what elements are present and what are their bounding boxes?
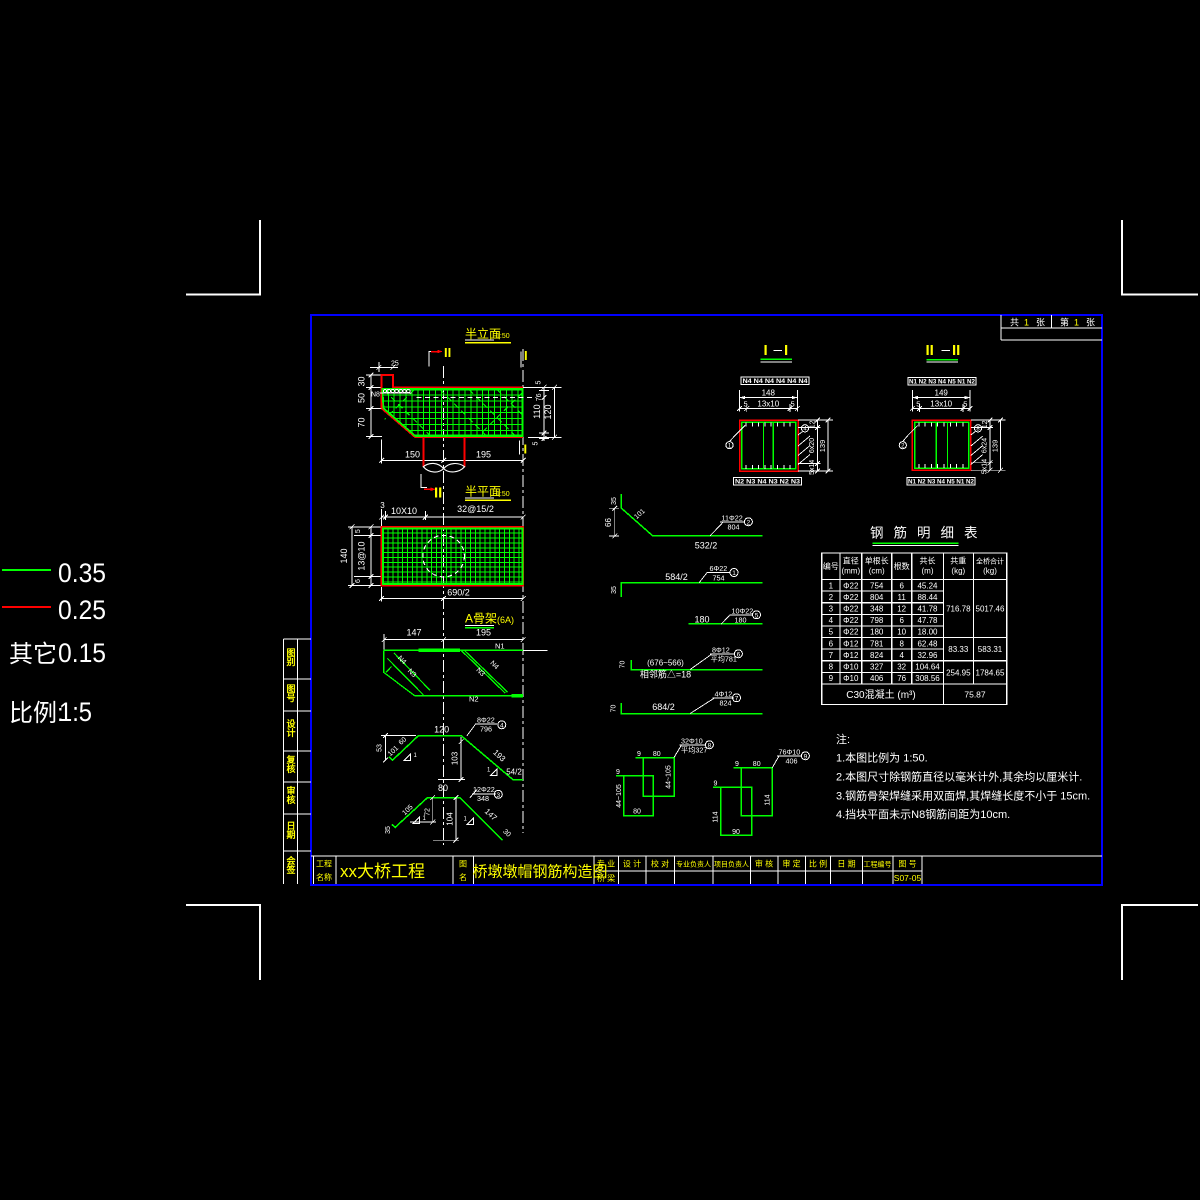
svg-text:25: 25 [391, 361, 399, 368]
svg-text:83.33: 83.33 [948, 645, 969, 654]
svg-text:32.96: 32.96 [917, 651, 938, 660]
svg-text:钢筋明细表: 钢筋明细表 [870, 525, 988, 541]
svg-text:Φ22: Φ22 [843, 581, 859, 590]
svg-text:计: 计 [287, 727, 296, 738]
svg-text:66: 66 [604, 518, 613, 527]
svg-text:(6A): (6A) [497, 615, 514, 625]
svg-text:别: 别 [286, 656, 296, 667]
svg-text:4Φ12: 4Φ12 [715, 689, 733, 698]
svg-text:2: 2 [829, 593, 834, 602]
svg-text:70: 70 [611, 705, 618, 713]
svg-text:44~105: 44~105 [665, 765, 672, 789]
svg-text:5: 5 [755, 612, 759, 619]
svg-text:全桥合计: 全桥合计 [976, 557, 1004, 566]
svg-text:30: 30 [357, 376, 367, 386]
svg-text:1: 1 [1074, 318, 1079, 328]
svg-text:3.钢筋骨架焊缝采用双面焊,其焊缝长度不小于 15cm.: 3.钢筋骨架焊缝采用双面焊,其焊缝长度不小于 15cm. [836, 789, 1090, 803]
svg-text:9: 9 [714, 781, 718, 788]
svg-text:148: 148 [762, 388, 776, 397]
svg-text:6x24: 6x24 [982, 438, 989, 453]
svg-text:72: 72 [424, 808, 431, 816]
svg-text:根数: 根数 [894, 561, 910, 571]
svg-text:12: 12 [897, 605, 906, 614]
svg-text:I: I [784, 342, 788, 359]
svg-text:张: 张 [1036, 318, 1045, 328]
svg-text:5: 5 [533, 441, 540, 445]
svg-text:18.00: 18.00 [917, 628, 938, 637]
svg-text:12: 12 [982, 420, 989, 428]
svg-text:45.24: 45.24 [917, 581, 938, 590]
svg-text:比 例: 比 例 [809, 859, 827, 869]
svg-text:1:5: 1:5 [59, 697, 92, 727]
svg-text:44~105: 44~105 [616, 784, 623, 808]
svg-text:6: 6 [355, 579, 362, 583]
svg-text:其它: 其它 [9, 641, 57, 668]
svg-text:70: 70 [620, 661, 627, 669]
svg-text:5: 5 [791, 400, 795, 409]
svg-text:I: I [764, 342, 768, 359]
svg-text:3: 3 [829, 605, 834, 614]
svg-text:N2: N2 [469, 695, 479, 704]
svg-text:7: 7 [735, 695, 739, 702]
svg-text:签: 签 [286, 864, 297, 875]
svg-text:(676~566): (676~566) [647, 658, 684, 667]
svg-text:I: I [524, 348, 528, 363]
svg-text:0.35: 0.35 [58, 558, 106, 588]
svg-text:0.25: 0.25 [58, 595, 106, 625]
svg-text:327: 327 [870, 663, 884, 672]
svg-text:专 业: 专 业 [597, 859, 615, 869]
svg-text:13x10: 13x10 [930, 400, 952, 409]
svg-text:150: 150 [405, 450, 420, 460]
svg-text:Φ22: Φ22 [843, 593, 859, 602]
svg-text:6: 6 [829, 639, 834, 648]
svg-text:审 核: 审 核 [755, 859, 773, 869]
svg-text:共长: 共长 [920, 556, 936, 566]
svg-text:62.48: 62.48 [917, 639, 938, 648]
svg-text:6: 6 [899, 581, 904, 590]
svg-text:9: 9 [829, 674, 834, 683]
svg-text:N1 N2 N3 N4 N5 N1 N2: N1 N2 N3 N4 N5 N1 N2 [908, 479, 974, 486]
svg-text:104: 104 [446, 812, 455, 826]
svg-text:3: 3 [380, 501, 385, 510]
svg-text:114: 114 [713, 811, 720, 822]
svg-text:单根长: 单根长 [865, 556, 889, 566]
svg-text:平均327: 平均327 [681, 745, 707, 754]
svg-text:76Φ10: 76Φ10 [779, 747, 801, 756]
svg-text:6: 6 [737, 651, 741, 658]
svg-text:工程编号: 工程编号 [864, 860, 892, 869]
svg-text:50: 50 [357, 393, 367, 403]
svg-text:(cm): (cm) [869, 567, 885, 576]
svg-text:180: 180 [870, 628, 884, 637]
svg-text:1:50: 1:50 [496, 491, 510, 498]
svg-text:1.本图比例为 1:50.: 1.本图比例为 1:50. [836, 751, 928, 765]
svg-text:824: 824 [870, 651, 884, 660]
svg-text:II: II [434, 485, 442, 502]
svg-text:5: 5 [916, 400, 920, 409]
svg-text:584/2: 584/2 [665, 572, 688, 582]
svg-text:图: 图 [459, 860, 467, 869]
svg-text:II: II [444, 345, 451, 360]
svg-text:9: 9 [735, 761, 739, 768]
svg-text:80: 80 [438, 783, 448, 793]
svg-text:8Φ22: 8Φ22 [477, 716, 495, 725]
svg-text:7: 7 [829, 651, 834, 660]
svg-text:308.56: 308.56 [915, 674, 940, 683]
svg-text:195: 195 [476, 450, 491, 460]
svg-text:804: 804 [870, 593, 884, 602]
svg-text:47.78: 47.78 [917, 616, 938, 625]
svg-text:Φ12: Φ12 [843, 639, 859, 648]
svg-text:120: 120 [434, 725, 449, 735]
svg-text:11: 11 [898, 593, 907, 602]
svg-text:工程: 工程 [316, 860, 332, 869]
svg-text:(m): (m) [922, 567, 934, 576]
svg-text:254.95: 254.95 [946, 669, 971, 678]
svg-text:(kg): (kg) [951, 567, 965, 576]
svg-text:平均781: 平均781 [711, 654, 737, 663]
svg-text:8: 8 [899, 639, 904, 648]
svg-text:6Φ22: 6Φ22 [710, 564, 728, 573]
svg-text:(mm): (mm) [841, 567, 860, 576]
svg-text:Φ22: Φ22 [843, 605, 859, 614]
svg-text:名: 名 [459, 872, 467, 882]
svg-text:校 对: 校 对 [651, 859, 669, 869]
svg-text:1784.65: 1784.65 [976, 669, 1005, 678]
svg-text:N4 N4 N4 N4 N4 N4: N4 N4 N4 N4 N4 N4 [743, 378, 809, 385]
svg-text:88.44: 88.44 [917, 593, 938, 602]
svg-text:716.78: 716.78 [946, 605, 971, 614]
svg-text:项目负责人: 项目负责人 [714, 860, 749, 869]
svg-text:4: 4 [899, 651, 904, 660]
svg-text:9: 9 [637, 751, 641, 758]
svg-text:5017.46: 5017.46 [976, 605, 1005, 614]
svg-text:张: 张 [1086, 318, 1095, 328]
svg-text:32Φ10: 32Φ10 [681, 736, 703, 745]
svg-text:4: 4 [500, 722, 504, 729]
svg-text:1: 1 [732, 570, 736, 577]
svg-text:12Φ22: 12Φ22 [473, 785, 495, 794]
svg-text:754: 754 [713, 574, 725, 583]
svg-text:180: 180 [694, 615, 709, 625]
svg-text:1:50: 1:50 [496, 333, 510, 340]
svg-text:4.挡块平面未示N8钢筋间距为10cm.: 4.挡块平面未示N8钢筋间距为10cm. [836, 807, 1010, 821]
svg-text:核: 核 [287, 794, 296, 805]
svg-text:54/2: 54/2 [506, 768, 522, 777]
svg-text:I: I [524, 442, 528, 457]
svg-text:2: 2 [747, 519, 751, 526]
svg-text:104.64: 104.64 [915, 663, 940, 672]
svg-text:专业负责人: 专业负责人 [676, 860, 711, 869]
svg-text:Φ22: Φ22 [843, 616, 859, 625]
svg-text:Φ12: Φ12 [843, 651, 859, 660]
svg-text:8: 8 [829, 663, 834, 672]
svg-text:N1: N1 [495, 642, 505, 651]
svg-text:图 号: 图 号 [898, 860, 916, 869]
svg-text:Φ22: Φ22 [843, 628, 859, 637]
svg-text:53: 53 [377, 744, 384, 752]
svg-text:103: 103 [451, 751, 460, 765]
svg-text:N2 N3 N4 N3 N2 N3: N2 N3 N4 N3 N2 N3 [735, 479, 801, 486]
svg-text:35: 35 [385, 826, 392, 834]
svg-text:76: 76 [536, 393, 543, 401]
svg-text:76: 76 [897, 674, 906, 683]
svg-text:比例:: 比例: [9, 700, 64, 727]
svg-text:10X10: 10X10 [391, 506, 417, 516]
svg-text:II: II [926, 342, 934, 359]
svg-text:9: 9 [616, 769, 620, 776]
svg-text:147: 147 [406, 628, 421, 638]
svg-text:114: 114 [765, 794, 772, 805]
svg-text:Φ10: Φ10 [843, 674, 859, 683]
svg-text:期: 期 [287, 829, 296, 840]
svg-text:II: II [952, 342, 960, 359]
svg-text:149: 149 [935, 388, 949, 397]
svg-text:桥 梁: 桥 梁 [597, 873, 615, 883]
svg-text:核: 核 [287, 763, 296, 774]
svg-text:13x10: 13x10 [757, 400, 779, 409]
svg-text:5: 5 [744, 400, 748, 409]
svg-text:N1 N2 N3 N4 N5 N1 N2: N1 N2 N3 N4 N5 N1 N2 [909, 379, 975, 386]
svg-text:审 定: 审 定 [782, 859, 800, 869]
svg-text:5x14: 5x14 [809, 460, 816, 475]
svg-text:11Φ22: 11Φ22 [722, 513, 743, 522]
svg-text:xx大桥工程: xx大桥工程 [340, 862, 425, 881]
svg-text:348: 348 [477, 794, 489, 803]
svg-text:3: 3 [496, 792, 500, 799]
svg-text:348: 348 [870, 605, 884, 614]
svg-text:41.78: 41.78 [917, 605, 938, 614]
svg-text:直径: 直径 [843, 556, 859, 566]
svg-text:相邻筋△=18: 相邻筋△=18 [640, 668, 691, 679]
svg-text:8Φ12: 8Φ12 [712, 645, 730, 654]
svg-text:1: 1 [1024, 318, 1029, 328]
svg-text:5x14: 5x14 [982, 459, 989, 474]
svg-text:796: 796 [480, 725, 492, 734]
svg-text:编号: 编号 [823, 561, 839, 571]
svg-text:13@10: 13@10 [357, 541, 367, 570]
svg-text:35: 35 [611, 586, 618, 594]
svg-text:406: 406 [870, 674, 884, 683]
svg-text:583.31: 583.31 [978, 645, 1003, 654]
svg-text:9: 9 [804, 753, 808, 760]
svg-text:798: 798 [870, 616, 884, 625]
svg-text:5: 5 [355, 529, 362, 533]
svg-text:0.15: 0.15 [58, 638, 106, 668]
svg-text:S07-05: S07-05 [894, 873, 922, 883]
svg-text:4: 4 [829, 616, 834, 625]
svg-text:139: 139 [990, 440, 999, 453]
svg-text:110: 110 [532, 404, 542, 418]
svg-text:32: 32 [897, 663, 906, 672]
svg-text:12: 12 [809, 420, 816, 428]
svg-text:名称: 名称 [316, 872, 332, 882]
svg-text:75.87: 75.87 [964, 690, 986, 700]
svg-text:804: 804 [728, 522, 740, 531]
svg-text:设 计: 设 计 [623, 859, 641, 869]
svg-text:532/2: 532/2 [695, 541, 718, 551]
svg-text:690/2: 690/2 [447, 588, 470, 598]
svg-text:5: 5 [536, 380, 543, 384]
svg-text:10: 10 [897, 628, 906, 637]
svg-text:195: 195 [476, 628, 491, 638]
svg-text:754: 754 [870, 581, 884, 590]
svg-text:80: 80 [633, 809, 641, 816]
svg-text:N8: N8 [371, 392, 380, 399]
svg-text:32@15/2: 32@15/2 [457, 504, 494, 514]
svg-text:5: 5 [963, 400, 967, 409]
svg-text:406: 406 [786, 756, 798, 765]
svg-text:139: 139 [818, 440, 827, 453]
svg-text:5: 5 [829, 628, 834, 637]
svg-text:2.本图尺寸除钢筋直径以毫米计外,其余均以厘米计.: 2.本图尺寸除钢筋直径以毫米计外,其余均以厘米计. [836, 770, 1082, 784]
svg-text:10Φ22: 10Φ22 [732, 606, 754, 615]
svg-text:Φ10: Φ10 [843, 663, 859, 672]
svg-text:824: 824 [720, 698, 732, 707]
svg-text:6: 6 [899, 616, 904, 625]
svg-text:140: 140 [339, 548, 349, 563]
svg-text:80: 80 [753, 761, 761, 768]
svg-text:120: 120 [543, 404, 553, 419]
svg-text:1: 1 [829, 581, 834, 590]
svg-text:781: 781 [870, 639, 884, 648]
svg-text:共: 共 [1010, 318, 1019, 328]
svg-text:35: 35 [611, 497, 618, 505]
svg-text:共重: 共重 [950, 556, 966, 566]
svg-text:C30混凝土 (m³): C30混凝土 (m³) [846, 688, 915, 701]
svg-text:6x20: 6x20 [809, 438, 816, 453]
svg-text:8: 8 [708, 742, 712, 749]
svg-text:A骨架: A骨架 [465, 612, 497, 626]
svg-text:桥墩墩帽钢筋构造图: 桥墩墩帽钢筋构造图 [472, 864, 607, 881]
svg-text:80: 80 [653, 751, 661, 758]
svg-text:(kg): (kg) [983, 567, 997, 576]
svg-text:号: 号 [287, 693, 296, 703]
svg-text:70: 70 [357, 417, 367, 427]
svg-text:第: 第 [1060, 317, 1069, 328]
svg-text:90: 90 [732, 829, 740, 836]
svg-text:日 期: 日 期 [837, 860, 855, 869]
svg-text:180: 180 [735, 616, 747, 625]
svg-text:684/2: 684/2 [652, 702, 675, 712]
svg-text:注:: 注: [836, 732, 850, 746]
